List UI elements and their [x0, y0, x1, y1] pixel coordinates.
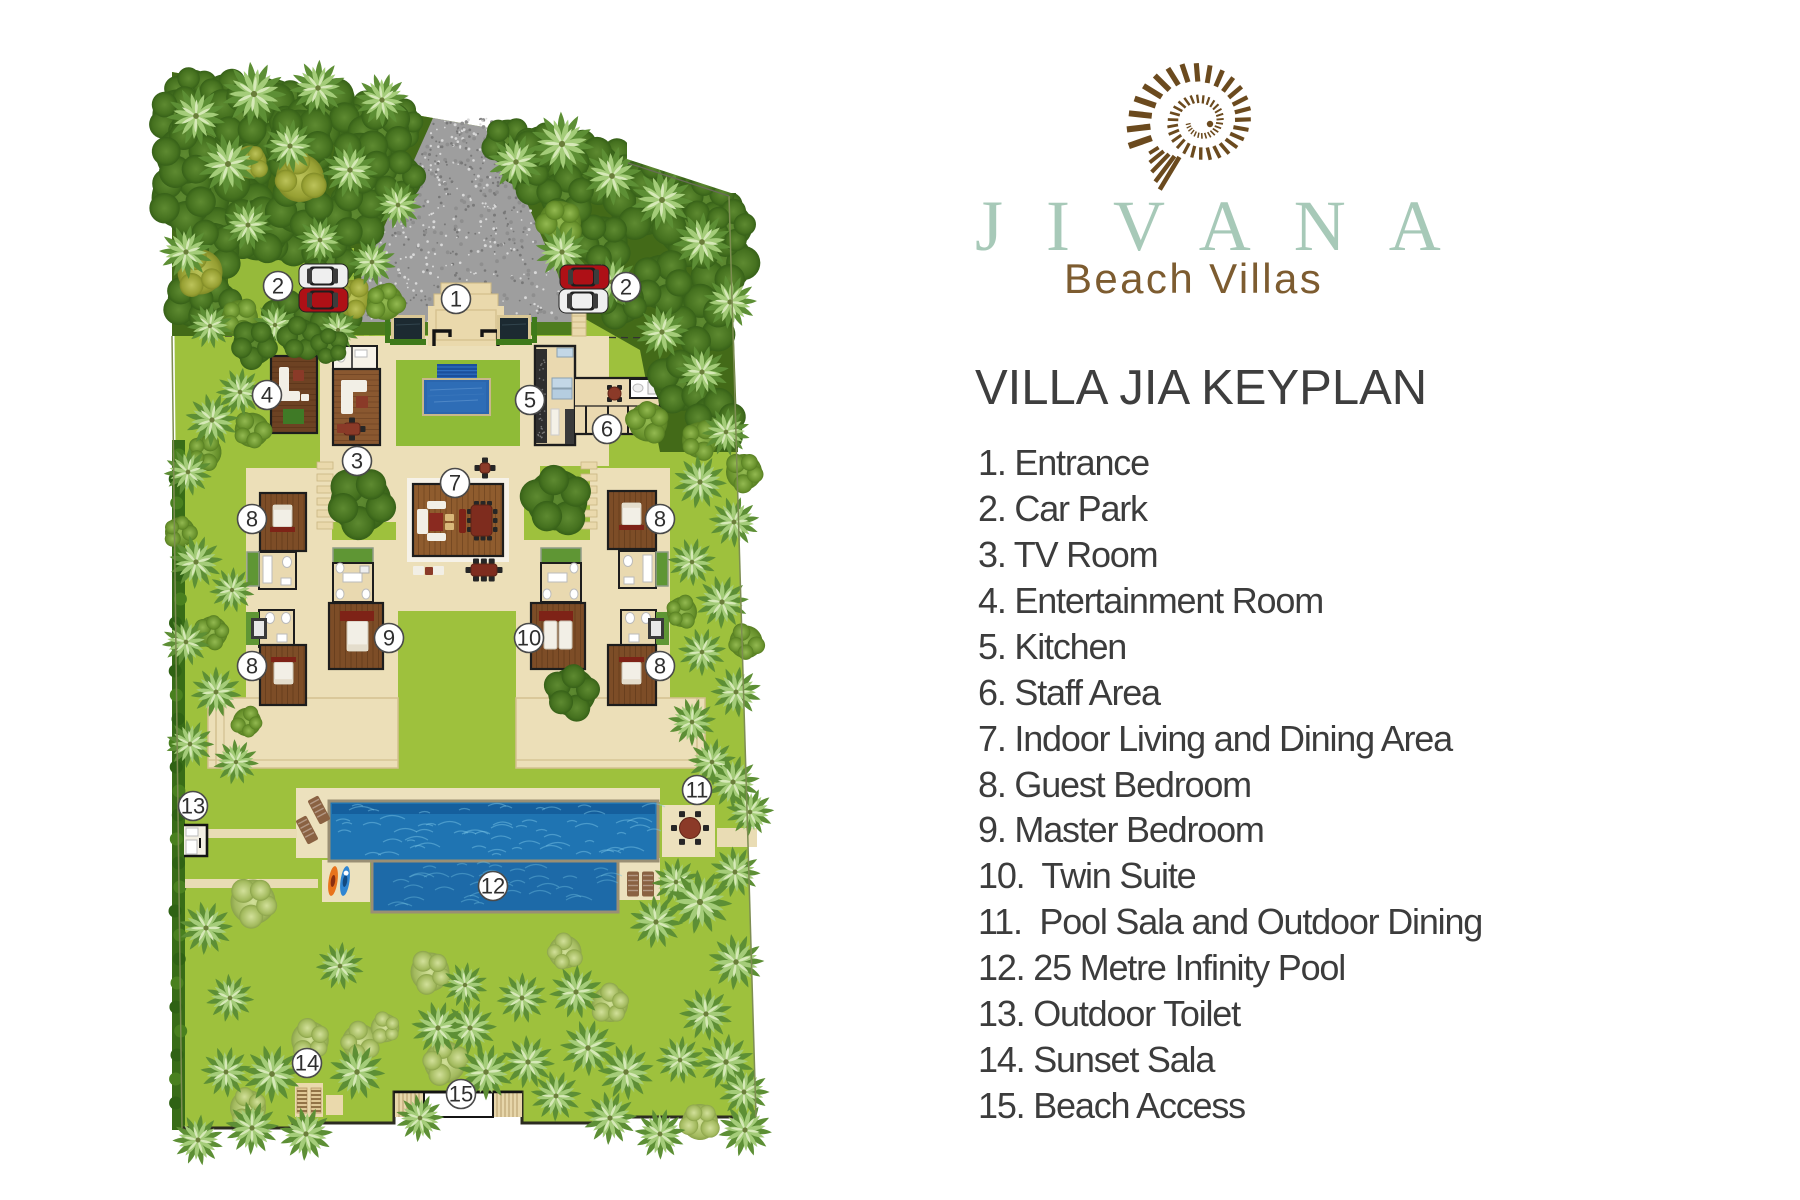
svg-text:5. Kitchen: 5. Kitchen: [978, 626, 1126, 667]
svg-text:JIVANA: JIVANA: [975, 186, 1484, 266]
svg-text:15. Beach Access: 15. Beach Access: [978, 1085, 1245, 1126]
svg-text:8. Guest Bedroom: 8. Guest Bedroom: [978, 764, 1251, 805]
svg-text:2: 2: [272, 274, 284, 299]
svg-text:4: 4: [261, 383, 273, 408]
svg-text:10: 10: [517, 626, 541, 651]
svg-text:4. Entertainment Room: 4. Entertainment Room: [978, 580, 1323, 621]
svg-text:10. Twin Suite: 10. Twin Suite: [978, 855, 1196, 896]
svg-text:13: 13: [181, 794, 205, 819]
svg-text:2: 2: [620, 275, 632, 300]
svg-text:15: 15: [449, 1082, 473, 1107]
svg-text:Beach Villas: Beach Villas: [1064, 255, 1323, 302]
svg-text:VILLA JIA KEYPLAN: VILLA JIA KEYPLAN: [975, 361, 1427, 415]
svg-text:14. Sunset Sala: 14. Sunset Sala: [978, 1039, 1216, 1080]
svg-text:3. TV Room: 3. TV Room: [978, 534, 1157, 575]
svg-text:8: 8: [246, 654, 258, 679]
svg-text:14: 14: [295, 1051, 319, 1076]
svg-text:2. Car Park: 2. Car Park: [978, 488, 1149, 529]
svg-text:9: 9: [383, 626, 395, 651]
svg-text:7. Indoor Living and Dining Ar: 7. Indoor Living and Dining Area: [978, 718, 1454, 759]
svg-text:8: 8: [246, 507, 258, 532]
svg-text:7: 7: [449, 471, 461, 496]
svg-text:11. Pool Sala and Outdoor Din: 11. Pool Sala and Outdoor Dining: [978, 901, 1482, 942]
svg-text:1: 1: [450, 287, 462, 312]
svg-text:6. Staff Area: 6. Staff Area: [978, 672, 1162, 713]
svg-text:8: 8: [654, 654, 666, 679]
svg-text:12. 25 Metre Infinity Pool: 12. 25 Metre Infinity Pool: [978, 947, 1345, 988]
svg-text:11: 11: [686, 778, 709, 803]
svg-text:12: 12: [481, 874, 505, 899]
svg-text:6: 6: [601, 417, 613, 442]
svg-text:1. Entrance: 1. Entrance: [978, 442, 1149, 483]
svg-text:5: 5: [524, 388, 536, 413]
svg-text:9. Master Bedroom: 9. Master Bedroom: [978, 809, 1264, 850]
svg-text:3: 3: [351, 449, 363, 474]
svg-text:13. Outdoor Toilet: 13. Outdoor Toilet: [978, 993, 1241, 1034]
svg-text:8: 8: [654, 507, 666, 532]
